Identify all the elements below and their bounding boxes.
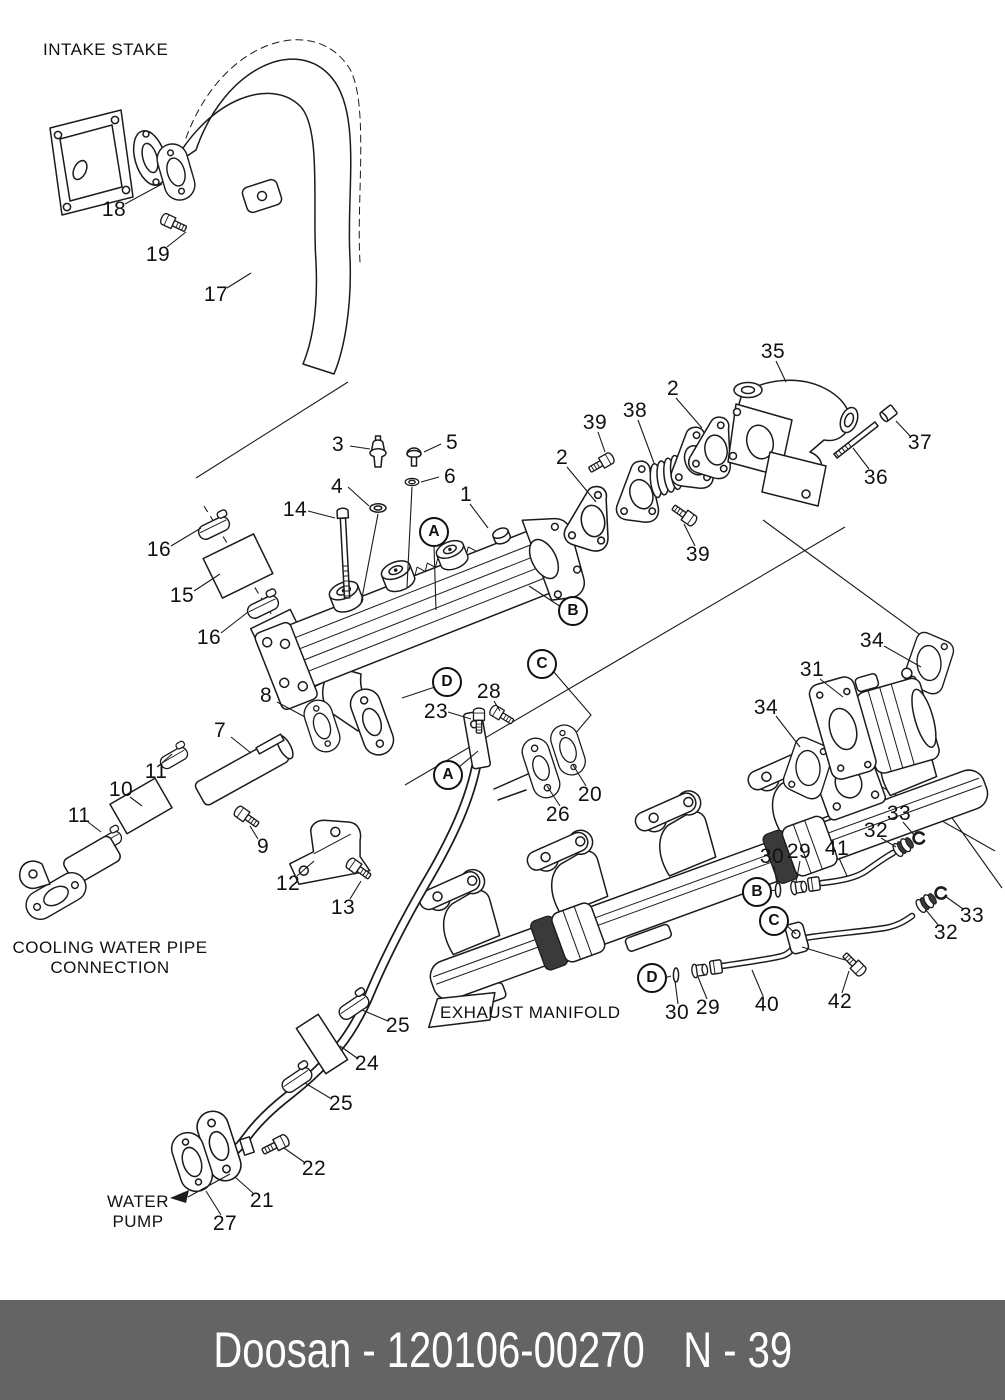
callout-C: C [759, 906, 789, 936]
callout-40: 40 [755, 993, 779, 1017]
callout-33: 33 [887, 802, 911, 826]
callout-25: 25 [329, 1092, 353, 1116]
callout-26: 26 [546, 803, 570, 827]
callout-2: 2 [556, 446, 568, 470]
callout-39: 39 [583, 411, 607, 435]
callout-28: 28 [477, 680, 501, 704]
callout-9: 9 [257, 835, 269, 859]
callout-29: 29 [696, 996, 720, 1020]
callout-6: 6 [444, 465, 456, 489]
callout-38: 38 [623, 399, 647, 423]
callout-25: 25 [386, 1014, 410, 1038]
callout-19: 19 [146, 243, 170, 267]
callout-33: 33 [960, 904, 984, 928]
callout-3: 3 [332, 433, 344, 457]
callout-41: 41 [825, 837, 849, 861]
callout-16: 16 [197, 626, 221, 650]
callout-27: 27 [213, 1212, 237, 1236]
callout-32: 32 [864, 819, 888, 843]
callout-17: 17 [204, 283, 228, 307]
footer-page-ref: N - 39 [683, 1321, 792, 1379]
label-water-pump: WATERPUMP [107, 1192, 169, 1232]
callout-5: 5 [446, 431, 458, 455]
callout-34: 34 [860, 629, 884, 653]
callout-36: 36 [864, 466, 888, 490]
callout-23: 23 [424, 700, 448, 724]
callout-42: 42 [828, 990, 852, 1014]
callout-A: A [433, 760, 463, 790]
footer-bar: Doosan - 120106-00270 N - 39 [0, 1300, 1005, 1400]
callout-14: 14 [283, 498, 307, 522]
callout-16: 16 [147, 538, 171, 562]
callout-20: 20 [578, 783, 602, 807]
label-cooling-water-pipe-connection: COOLING WATER PIPECONNECTION [12, 938, 207, 978]
callout-11: 11 [145, 760, 168, 784]
callout-21: 21 [250, 1189, 274, 1213]
callout-18: 18 [102, 198, 126, 222]
callout-layer: 181917354611423938235373639161516ABCD343… [0, 0, 1005, 1300]
label-intake-stake: INTAKE STAKE [43, 40, 168, 60]
callout-30: 30 [760, 845, 784, 869]
callout-15: 15 [170, 584, 194, 608]
callout-D: D [432, 667, 462, 697]
callout-8: 8 [260, 684, 272, 708]
callout-24: 24 [355, 1052, 379, 1076]
callout-10: 10 [109, 778, 133, 802]
callout-35: 35 [761, 340, 785, 364]
callout-31: 31 [800, 658, 824, 682]
callout-A: A [419, 517, 449, 547]
callout-7: 7 [214, 719, 226, 743]
callout-39: 39 [686, 543, 710, 567]
callout-1: 1 [460, 483, 472, 507]
callout-4: 4 [331, 475, 343, 499]
callout-12: 12 [276, 872, 300, 896]
callout-29: 29 [787, 840, 811, 864]
callout-11: 11 [68, 804, 91, 828]
callout-2: 2 [667, 377, 679, 401]
label-exhaust-manifold: EXHAUST MANIFOLD [440, 1003, 621, 1023]
parts-catalog-page: 181917354611423938235373639161516ABCD343… [0, 0, 1005, 1400]
callout-C: C [527, 649, 557, 679]
footer-brand-part: Doosan - 120106-00270 [213, 1321, 644, 1379]
callout-B: B [742, 877, 772, 907]
callout-37: 37 [908, 431, 932, 455]
callout-22: 22 [302, 1157, 326, 1181]
callout-D: D [637, 963, 667, 993]
callout-B: B [558, 596, 588, 626]
callout-30: 30 [665, 1001, 689, 1025]
exploded-parts-diagram: 181917354611423938235373639161516ABCD343… [0, 0, 1005, 1300]
callout-13: 13 [331, 896, 355, 920]
callout-32: 32 [934, 921, 958, 945]
callout-34: 34 [754, 696, 778, 720]
